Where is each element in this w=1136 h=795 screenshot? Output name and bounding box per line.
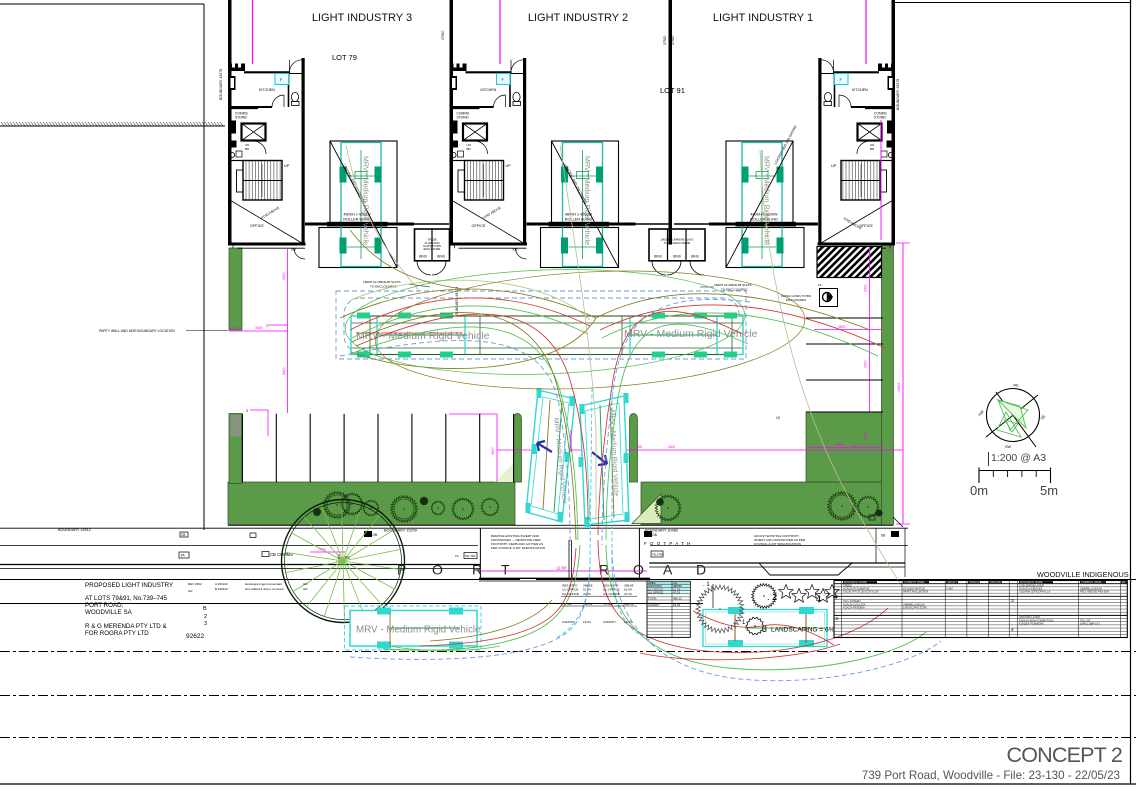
svg-text:5400: 5400 (282, 272, 286, 280)
svg-text:3400: 3400 (255, 326, 263, 330)
svg-text:UP: UP (284, 164, 290, 168)
svg-text:TELSTRA: TELSTRA (652, 553, 664, 557)
svg-text:ENCLOSURE: ENCLOSURE (424, 247, 441, 251)
svg-text:BOUNDARY 16912: BOUNDARY 16912 (58, 528, 91, 532)
svg-text:SPACING: SPACING (990, 580, 1001, 584)
svg-text:REV 2002: REV 2002 (188, 582, 202, 586)
svg-text:TOTAL: TOTAL (603, 602, 613, 606)
svg-text:COUNCIL & DIT SPECIFICATION: COUNCIL & DIT SPECIFICATION (754, 542, 801, 546)
svg-text:19: 19 (818, 283, 822, 287)
svg-text:PER COUNCIL & DIT SPECIFICATIO: PER COUNCIL & DIT SPECIFICATION (491, 546, 545, 550)
svg-text:1: 1 (266, 324, 268, 328)
svg-text:NE: NE (1013, 384, 1019, 388)
svg-text:BINS: BINS (654, 255, 661, 259)
svg-text:BOUNDARY 49378: BOUNDARY 49378 (219, 69, 223, 100)
svg-text:STORE/: STORE/ (457, 116, 469, 120)
svg-text:600: 600 (888, 249, 893, 253)
svg-text:COMMON NAME: COMMON NAME (904, 580, 925, 584)
svg-text:16.33: 16.33 (673, 603, 680, 607)
svg-text:2400: 2400 (864, 360, 868, 368)
svg-text:16.33: 16.33 (624, 620, 632, 624)
svg-text:TO BIN ENCLOSURE: TO BIN ENCLOSURE (664, 241, 691, 245)
svg-text:6400: 6400 (282, 367, 286, 375)
svg-text:AT LOTS 79&91, No.739–745: AT LOTS 79&91, No.739–745 (85, 595, 168, 602)
svg-text:498.12: 498.12 (673, 597, 682, 601)
svg-text:. 2: . 2 (767, 592, 777, 602)
svg-text:LOT 79: LOT 79 (332, 53, 357, 62)
svg-text:4: 4 (816, 594, 821, 604)
svg-text:COMMON NAME: COMMON NAME (1081, 580, 1102, 584)
svg-text:KUNZEA POMIFERA: KUNZEA POMIFERA (1019, 621, 1044, 625)
svg-text:LIGHT INDUSTRY 3: LIGHT INDUSTRY 3 (312, 12, 412, 24)
svg-text:TO ENCLOSURES: TO ENCLOSURES (370, 285, 396, 289)
svg-text:15: 15 (776, 416, 780, 420)
svg-text:PORT ROAD,: PORT ROAD, (85, 602, 124, 609)
svg-text:WHITE MALLEE BOX: WHITE MALLEE BOX (903, 590, 929, 594)
svg-text:WOODVILLE SA: WOODVILLE SA (85, 609, 133, 616)
svg-text:SW: SW (1005, 445, 1012, 449)
svg-text:landscape legend amended: landscape legend amended (245, 582, 282, 586)
svg-text:U/L OFFICE: U/L OFFICE (562, 592, 579, 596)
svg-text:1000: 1000 (230, 326, 238, 330)
svg-text:4800: 4800 (835, 443, 843, 447)
svg-text:LANDSCAPE SCRN: LANDSCAPE SCRN (903, 606, 927, 610)
svg-text:SMALL BBP-LKT: SMALL BBP-LKT (1080, 621, 1100, 625)
svg-text:BINS: BINS (419, 255, 426, 259)
svg-text:O: O (633, 562, 644, 578)
svg-text:PARTY WALL AND MGR BOUNDARY LO: PARTY WALL AND MGR BOUNDARY LOCATION (99, 329, 175, 333)
svg-text:DB: DB (653, 533, 657, 537)
svg-text:STORE/: STORE/ (874, 116, 886, 120)
svg-text:92622: 92622 (186, 633, 204, 640)
svg-text:2400: 2400 (864, 432, 868, 440)
svg-text:47.33: 47.33 (673, 590, 680, 594)
svg-text:HEIGHT: HEIGHT (947, 580, 957, 584)
svg-text:16.33: 16.33 (583, 620, 591, 624)
svg-text:A: A (663, 562, 673, 578)
svg-text:DB: DB (881, 534, 885, 538)
svg-text:27920: 27920 (441, 30, 445, 40)
svg-text:3–5M: 3–5M (946, 587, 953, 591)
svg-text:BINS: BINS (691, 255, 698, 259)
svg-text:300: 300 (637, 445, 643, 449)
svg-text:CANOPY: CANOPY (603, 620, 616, 624)
svg-text:CANOPY: CANOPY (562, 620, 575, 624)
svg-text:EUCALYPTUS LEUCOXYLON: EUCALYPTUS LEUCOXYLON (843, 590, 879, 594)
svg-text:LOT 91: LOT 91 (660, 86, 685, 95)
svg-text:BOTANICAL NAME: BOTANICAL NAME (1020, 580, 1043, 584)
svg-text:OFFICE: OFFICE (472, 224, 486, 228)
svg-text:BINS: BINS (437, 255, 444, 259)
svg-text:U/L OFFICE: U/L OFFICE (648, 590, 663, 594)
svg-text:TRADE: TRADE (427, 238, 436, 242)
svg-text:739 Port Road, Woodville - Fil: 739 Port Road, Woodville - File: 23-130 … (862, 769, 1120, 782)
svg-text:TOTAL: TOTAL (648, 597, 657, 601)
svg-text:3: 3 (246, 409, 248, 413)
svg-text:3: 3 (1011, 598, 1014, 604)
svg-text:930: 930 (513, 248, 518, 252)
svg-text:0m: 0m (970, 483, 988, 498)
svg-text:LIGHT INDUSTRY 2: LIGHT INDUSTRY 2 (528, 12, 628, 24)
svg-text:BOUNDARY 15200: BOUNDARY 15200 (384, 529, 417, 533)
svg-text:4800: 4800 (838, 325, 846, 329)
svg-text:4900: 4900 (491, 447, 495, 455)
svg-text:47.33: 47.33 (624, 592, 632, 596)
svg-text:5m: 5m (1040, 483, 1058, 498)
svg-text:300: 300 (851, 445, 857, 449)
svg-text:KITCHEN: KITCHEN (481, 88, 497, 92)
svg-text:11.60: 11.60 (556, 566, 567, 571)
svg-text:O: O (432, 562, 443, 578)
svg-text:TOTAL: TOTAL (562, 602, 572, 606)
svg-text:R & G MERENDA PTY LTD &: R & G MERENDA PTY LTD & (85, 623, 167, 630)
svg-text:1800H ALUMINIUM SLATS: 1800H ALUMINIUM SLATS (363, 280, 401, 284)
svg-text:LIGHT INDUSTRY 1: LIGHT INDUSTRY 1 (713, 12, 813, 24)
svg-text:2400: 2400 (668, 445, 675, 449)
svg-text:TA: TA (181, 554, 186, 558)
svg-text:BINS: BINS (673, 255, 680, 259)
svg-text:GB: GB (373, 533, 378, 537)
svg-text:930: 930 (291, 248, 296, 252)
svg-text:B: B (203, 606, 207, 612)
svg-text:UP: UP (831, 164, 837, 168)
svg-text:BOTANICAL NAME: BOTANICAL NAME (844, 580, 867, 584)
svg-text:CONCEPT 2: CONCEPT 2 (1007, 743, 1122, 767)
svg-text:3: 3 (204, 621, 207, 627)
svg-text:STORE/: STORE/ (235, 116, 247, 120)
svg-text:KITCHEN: KITCHEN (259, 88, 275, 92)
svg-text:TEL TRA: TEL TRA (465, 554, 476, 558)
svg-text:FOR ROGRA PTY LTD: FOR ROGRA PTY LTD (85, 630, 149, 637)
svg-text:MRV - Medium Rigid Vehicle: MRV - Medium Rigid Vehicle (356, 625, 481, 636)
svg-text:4: 4 (1011, 627, 1014, 633)
svg-text:OLEARIA LEPIDOPHYLLA: OLEARIA LEPIDOPHYLLA (1019, 590, 1051, 594)
svg-text:2400: 2400 (864, 284, 868, 292)
svg-text:bins added & demo removed: bins added & demo removed (245, 587, 284, 591)
svg-text:19305: 19305 (897, 382, 901, 392)
svg-text:A 201222: A 201222 (215, 582, 228, 586)
svg-text:BOUNDARY 49378: BOUNDARY 49378 (896, 79, 900, 110)
svg-text:KITCHEN: KITCHEN (852, 88, 868, 92)
svg-text:F O O T P A T H: F O O T P A T H (644, 541, 691, 546)
svg-text:T: T (501, 562, 510, 578)
svg-text:TA: TA (455, 554, 459, 558)
svg-text:27920: 27920 (671, 35, 675, 45)
svg-text:2: 2 (836, 616, 839, 622)
svg-text:PELX WEDGE-PEA 50M: PELX WEDGE-PEA 50M (1080, 590, 1109, 594)
svg-text:CB: CB (181, 533, 185, 537)
svg-text:2: 2 (204, 614, 207, 620)
svg-text:47.33: 47.33 (583, 592, 591, 596)
svg-text:498.12: 498.12 (583, 602, 593, 606)
svg-text:CANOPY: CANOPY (648, 603, 660, 607)
svg-text:R: R (472, 562, 482, 578)
svg-text:ACACIA PENDINA: ACACIA PENDINA (843, 606, 865, 610)
svg-text:SPREAD: SPREAD (969, 580, 980, 584)
svg-text:27920: 27920 (663, 35, 667, 45)
svg-text:D: D (696, 562, 706, 578)
svg-text:1: 1 (836, 594, 839, 600)
svg-text:498.12: 498.12 (624, 602, 634, 606)
svg-text:WOODVILLE INDIGENOUS: WOODVILLE INDIGENOUS (1037, 570, 1129, 579)
svg-text:UP: UP (506, 164, 512, 168)
svg-text:HT: HT (1122, 580, 1126, 584)
svg-text:B 190123: B 190123 (215, 587, 228, 591)
svg-text:PROPOSED LIGHT INDUSTRY: PROPOSED LIGHT INDUSTRY (85, 582, 173, 589)
svg-text:U/L OFFICE: U/L OFFICE (603, 592, 620, 596)
svg-text:OFFICE: OFFICE (250, 224, 264, 228)
svg-text:. 1: . 1 (703, 582, 710, 588)
svg-text:1800H ALUMINIUM SLATS: 1800H ALUMINIUM SLATS (714, 283, 752, 287)
svg-text:1:200 @ A3: 1:200 @ A3 (991, 452, 1046, 464)
